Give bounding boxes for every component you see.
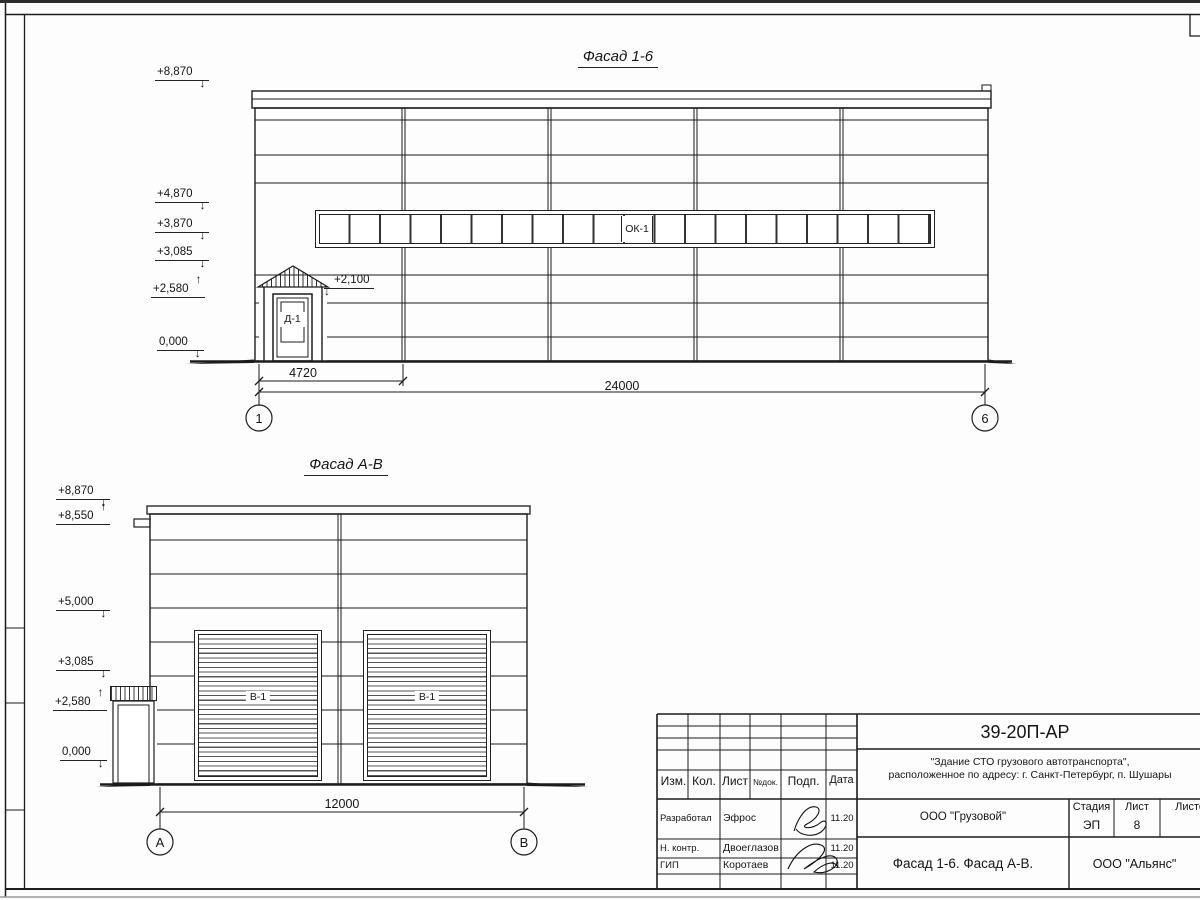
gate-label: В-1: [415, 691, 439, 704]
elevation-mark: +4,870↓: [155, 188, 209, 203]
stage-value: ЭП: [1069, 818, 1114, 832]
gate-slats: [198, 634, 318, 777]
elevation-mark: +2,580↑: [53, 696, 107, 711]
sheet-header: Лист: [1114, 801, 1160, 813]
arrow-down-icon: ↓: [101, 667, 107, 679]
company-name: ООО "Альянс": [1069, 857, 1200, 871]
elevation-mark: +2,580↑: [151, 283, 205, 298]
sheets-header: Листов: [1160, 801, 1200, 813]
facade-1-6-title: Фасад 1-6: [558, 48, 678, 68]
col-header-podp: Подп.: [782, 774, 825, 788]
axis-bubble-1: 1: [246, 411, 272, 426]
row-date: 11.20: [828, 843, 856, 854]
arrow-down-icon: ↓: [200, 199, 206, 211]
arrow-up-icon: ↑: [98, 686, 104, 698]
row-role-razrabotal: Разработал: [660, 813, 712, 824]
facade-a-b-title: Фасад А-В: [286, 456, 406, 476]
elevation-mark: +5,000↓: [56, 596, 110, 611]
arrow-down-icon: ↓: [324, 285, 330, 297]
gate-label: В-1: [246, 691, 270, 704]
row-date: 11.20: [828, 813, 856, 824]
drawing-sheet: Фасад 1-6 Фасад А-В ОК-1 Д-1 +8,870↓ +4,…: [0, 0, 1200, 900]
elevation-mark: 0,000↓: [157, 336, 204, 351]
elevation-mark: +3,085↓: [155, 246, 209, 261]
axis-bubble-6: 6: [972, 411, 998, 426]
elevation-mark: +8,870↓: [56, 485, 110, 500]
row-name-efros: Эфрос: [723, 812, 756, 824]
arrow-up-icon: ↑: [101, 500, 107, 512]
arrow-up-icon: ↑: [196, 273, 202, 285]
dimension-4720: 4720: [258, 366, 348, 380]
arrow-down-icon: ↓: [98, 757, 104, 769]
project-line2: расположенное по адресу: г. Санкт-Петерб…: [862, 769, 1198, 782]
arrow-down-icon: ↓: [200, 257, 206, 269]
elevation-mark: +8,550↑: [56, 510, 110, 525]
client-name: ООО "Грузовой": [877, 811, 1049, 823]
row-name-dvoeglazov: Двоеглазов: [723, 842, 779, 854]
col-header-data: Дата: [827, 774, 856, 786]
stage-header: Стадия: [1069, 801, 1114, 813]
arrow-down-icon: ↓: [101, 607, 107, 619]
col-header-list: Лист: [721, 774, 749, 788]
sheet-value: 8: [1114, 818, 1160, 832]
elevation-mark: +3,085↓: [56, 656, 110, 671]
sheet-title: Фасад 1-6. Фасад А-В.: [867, 856, 1059, 871]
elevation-mark: +8,870↓: [155, 66, 209, 81]
row-role-gip: ГИП: [660, 860, 679, 871]
window-band-label: ОК-1: [621, 216, 653, 242]
elevation-mark: +2,100↓: [324, 274, 374, 289]
elevation-mark: +3,870↓: [155, 218, 209, 233]
door-label: Д-1: [278, 312, 307, 327]
row-name-korotaev: Коротаев: [723, 859, 768, 871]
project-description: "Здание СТО грузового автотранспорта", р…: [862, 756, 1198, 782]
dimension-24000: 24000: [577, 379, 667, 393]
project-line1: "Здание СТО грузового автотранспорта",: [862, 756, 1198, 769]
gate-v1-left: В-1: [194, 630, 322, 781]
col-header-ndok: №док.: [751, 777, 780, 787]
col-header-kol: Кол.: [689, 774, 719, 788]
arrow-down-icon: ↓: [195, 347, 201, 359]
arrow-down-icon: ↓: [200, 77, 206, 89]
dimension-12000: 12000: [297, 797, 387, 811]
document-number: 39-20П-АР: [880, 721, 1170, 743]
row-date: 11.20: [828, 860, 856, 871]
gate-slats: [367, 634, 487, 777]
row-role-nkontr: Н. контр.: [660, 843, 699, 854]
axis-bubble-b: В: [511, 835, 537, 850]
elevation-mark: 0,000↓: [60, 746, 107, 761]
col-header-izm: Изм.: [659, 774, 688, 788]
arrow-down-icon: ↓: [200, 229, 206, 241]
gate-v1-right: В-1: [363, 630, 491, 781]
axis-bubble-a: А: [147, 835, 173, 850]
entrance-canopy-hatch: [110, 686, 157, 701]
